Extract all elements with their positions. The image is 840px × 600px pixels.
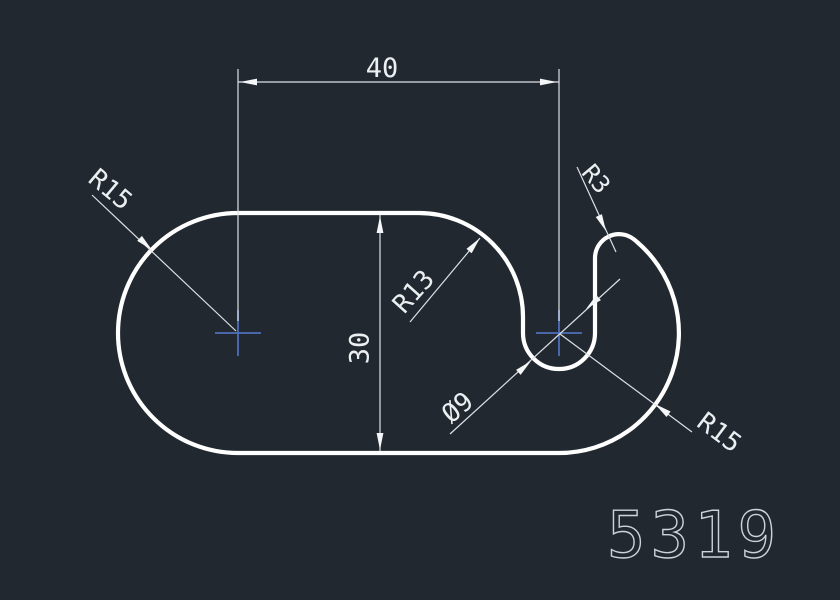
dimension-label-r15-right: R15 [691, 407, 747, 459]
arrowhead-r3 [596, 214, 609, 232]
part-number: 5319 [607, 499, 781, 573]
part-outline [118, 213, 679, 453]
cad-viewport[interactable]: 40 30 R15 R13 Ø9 R3 R15 5319 [0, 0, 840, 600]
dimension-inner-radius: R13 [387, 236, 482, 322]
dimension-label-40: 40 [366, 53, 399, 84]
dimension-slot-diameter: Ø9 [436, 279, 620, 434]
dimension-height: 30 [345, 215, 384, 451]
arrowhead-40-left [240, 79, 257, 86]
arrowhead-30-top [377, 216, 384, 233]
leader-r15-right [560, 334, 692, 432]
dimension-left-radius: R15 [82, 163, 236, 331]
dimension-label-r15-left: R15 [82, 163, 137, 216]
dimension-hook-radius: R3 [576, 159, 616, 252]
arrowhead-40-right [540, 79, 557, 86]
dimension-label-d9: Ø9 [436, 386, 479, 429]
dimension-label-30: 30 [345, 332, 376, 365]
cad-canvas[interactable]: 40 30 R15 R13 Ø9 R3 R15 5319 [0, 0, 840, 600]
dimension-top-width: 40 [238, 53, 559, 321]
arrowhead-30-bottom [377, 433, 384, 450]
dimension-label-r13: R13 [387, 265, 441, 320]
dimension-label-r3: R3 [576, 159, 616, 199]
